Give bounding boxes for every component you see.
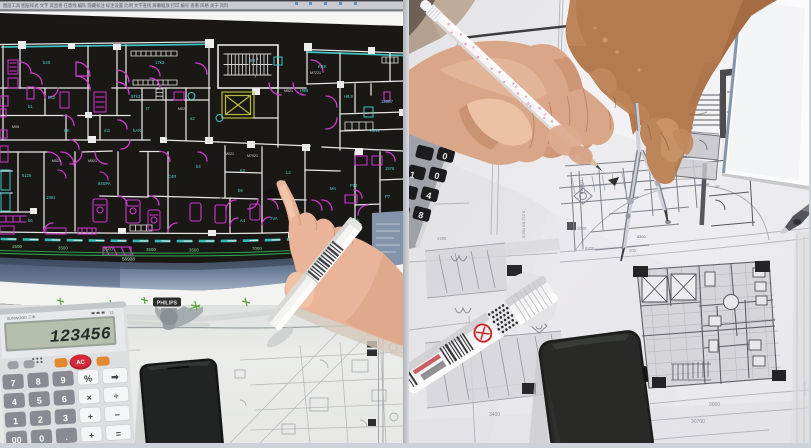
svg-text:P7: P7 xyxy=(385,194,391,199)
svg-text:HK: HK xyxy=(64,128,70,133)
svg-text:m3: m3 xyxy=(104,128,110,133)
svg-text:00: 00 xyxy=(11,435,22,443)
svg-text:−: − xyxy=(114,410,120,420)
svg-text:5: 5 xyxy=(37,395,43,405)
svg-text:M021: M021 xyxy=(178,107,187,111)
svg-text:➡: ➡ xyxy=(111,372,120,382)
svg-text:b42: b42 xyxy=(48,95,56,100)
svg-text:b1: b1 xyxy=(28,104,33,109)
svg-text:M521: M521 xyxy=(284,89,293,93)
svg-text:4: 4 xyxy=(12,397,18,407)
svg-text:M7221: M7221 xyxy=(310,71,321,75)
svg-text:H9B: H9B xyxy=(300,88,308,93)
svg-text:C4R: C4R xyxy=(168,174,176,179)
svg-text:b8: b8 xyxy=(238,188,243,193)
svg-text:3500: 3500 xyxy=(103,247,113,252)
svg-text:3500: 3500 xyxy=(146,247,156,252)
svg-text:P12: P12 xyxy=(350,183,358,188)
svg-text:+: + xyxy=(87,411,93,421)
svg-text:K012: K012 xyxy=(370,128,380,133)
svg-text:84SPA: 84SPA xyxy=(98,181,111,186)
svg-text:8R: 8R xyxy=(250,58,255,63)
svg-text:3400: 3400 xyxy=(489,412,500,418)
svg-text:9000: 9000 xyxy=(709,402,720,408)
svg-text:PHILIPS: PHILIPS xyxy=(157,300,178,306)
svg-text:1: 1 xyxy=(13,416,19,426)
svg-text:3500: 3500 xyxy=(189,248,199,253)
svg-text:=: = xyxy=(116,429,122,439)
svg-text:200: 200 xyxy=(629,248,637,253)
svg-text:M521: M521 xyxy=(88,159,97,163)
svg-text:M021: M021 xyxy=(225,152,234,156)
svg-text:M7021: M7021 xyxy=(247,154,258,158)
svg-text:0.254 K0.722 K: 0.254 K0.722 K xyxy=(521,210,526,238)
svg-text:7VA: 7VA xyxy=(270,216,278,221)
svg-text:%: % xyxy=(84,373,93,383)
svg-text:×: × xyxy=(86,392,92,402)
svg-text:图层工具 图层样式 文字 高显格 任意线 编队: 图层工具 图层样式 文字 高显格 任意线 编队 隐藏标注 标注设置 比例 文字查… xyxy=(3,2,229,9)
svg-text:K2: K2 xyxy=(240,168,246,173)
svg-text:b6: b6 xyxy=(28,218,33,223)
svg-text:4200: 4200 xyxy=(437,236,447,241)
svg-text:M521: M521 xyxy=(52,159,61,163)
svg-text:1991: 1991 xyxy=(46,195,56,200)
svg-text:6300: 6300 xyxy=(637,235,645,239)
svg-text:123456: 123456 xyxy=(49,325,111,348)
svg-text:H9.9: H9.9 xyxy=(344,94,354,99)
svg-text:A4: A4 xyxy=(240,218,246,223)
svg-text:17k3: 17k3 xyxy=(155,60,165,65)
svg-text:+: + xyxy=(89,430,95,440)
svg-text:6125: 6125 xyxy=(22,173,32,178)
svg-text:9: 9 xyxy=(60,375,66,385)
svg-text:1976: 1976 xyxy=(385,166,395,171)
svg-text:L2: L2 xyxy=(286,170,291,175)
svg-text:FW4521: FW4521 xyxy=(580,180,584,194)
svg-text:b4: b4 xyxy=(196,164,201,169)
svg-text:140B7: 140B7 xyxy=(381,99,394,104)
svg-text:8: 8 xyxy=(35,377,41,387)
svg-text:3500: 3500 xyxy=(58,246,68,251)
svg-text:hAN: hAN xyxy=(133,128,141,133)
svg-text:3: 3 xyxy=(63,413,69,423)
svg-text:M4: M4 xyxy=(330,186,336,191)
svg-text:a2: a2 xyxy=(190,116,195,121)
svg-text:3500: 3500 xyxy=(12,244,22,249)
svg-text:1F: 1F xyxy=(715,185,720,189)
svg-text:b4S: b4S xyxy=(43,60,51,65)
svg-text:AC: AC xyxy=(76,360,86,367)
svg-text:KRK: KRK xyxy=(318,64,327,69)
svg-text:7000: 7000 xyxy=(252,246,262,251)
svg-text:2: 2 xyxy=(38,414,44,424)
svg-text:M05: M05 xyxy=(12,125,19,129)
svg-text:12: 12 xyxy=(109,311,113,315)
svg-text:30700: 30700 xyxy=(691,419,705,425)
svg-text:9Tk3: 9Tk3 xyxy=(131,94,141,99)
svg-text:0: 0 xyxy=(39,433,45,443)
svg-text:5200: 5200 xyxy=(585,246,595,251)
svg-text:56908: 56908 xyxy=(122,257,135,262)
svg-text:÷: ÷ xyxy=(113,391,119,401)
svg-text:7: 7 xyxy=(10,378,16,388)
svg-text:6: 6 xyxy=(61,394,67,404)
